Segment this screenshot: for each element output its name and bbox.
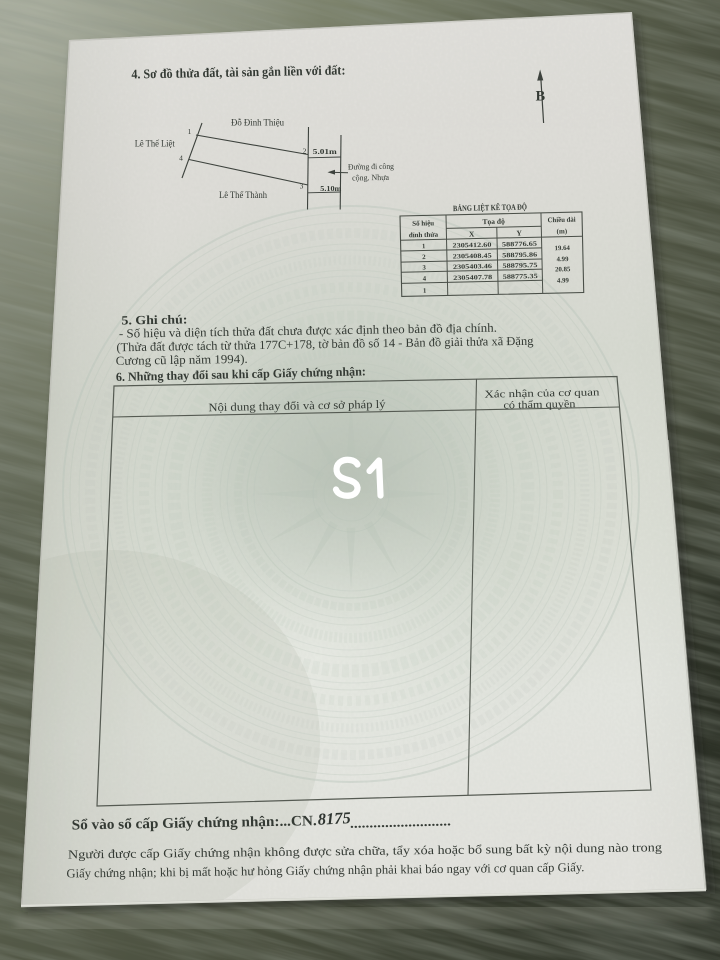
svg-text:(m): (m) bbox=[557, 227, 568, 235]
svg-text:8175: 8175 bbox=[317, 808, 351, 829]
svg-text:Xác nhận của cơ quan: Xác nhận của cơ quan bbox=[484, 387, 600, 400]
svg-text:2: 2 bbox=[303, 146, 307, 155]
svg-text:1: 1 bbox=[188, 127, 192, 136]
svg-text:19.64: 19.64 bbox=[555, 245, 571, 252]
svg-text:Đỗ Đình Thiệu: Đỗ Đình Thiệu bbox=[231, 118, 284, 129]
svg-text:cộng. Nhựa: cộng. Nhựa bbox=[352, 173, 390, 183]
svg-text:2305403.46: 2305403.46 bbox=[453, 263, 493, 271]
svg-text:5.10m: 5.10m bbox=[320, 185, 341, 193]
svg-text:Y: Y bbox=[516, 229, 522, 238]
svg-text:Cương cũ lập năm 1994).: Cương cũ lập năm 1994). bbox=[116, 352, 248, 368]
svg-text:có thẩm quyền: có thẩm quyền bbox=[503, 399, 576, 411]
svg-text:2305408.45: 2305408.45 bbox=[453, 253, 493, 261]
svg-text:B: B bbox=[536, 89, 546, 105]
svg-text:X: X bbox=[469, 230, 475, 239]
svg-text:Lê Thế Thành: Lê Thế Thành bbox=[219, 190, 267, 201]
svg-text:Tọa độ: Tọa độ bbox=[482, 217, 505, 226]
svg-text:4: 4 bbox=[179, 154, 183, 163]
svg-text:BẢNG LIỆT KÊ TỌA ĐỘ: BẢNG LIỆT KÊ TỌA ĐỘ bbox=[453, 201, 527, 213]
svg-text:588776.65: 588776.65 bbox=[502, 241, 538, 249]
svg-text:4.99: 4.99 bbox=[556, 256, 569, 263]
svg-text:2305407.78: 2305407.78 bbox=[453, 274, 493, 282]
svg-text:đỉnh thửa: đỉnh thửa bbox=[409, 231, 439, 240]
svg-text:..........................: .......................... bbox=[350, 813, 451, 830]
svg-text:4.99: 4.99 bbox=[557, 277, 570, 284]
svg-text:20.85: 20.85 bbox=[555, 266, 571, 273]
svg-text:Số hiệu: Số hiệu bbox=[412, 219, 434, 227]
svg-text:Chiều dài: Chiều dài bbox=[548, 216, 576, 225]
svg-text:Lê Thế Liệt: Lê Thế Liệt bbox=[135, 138, 175, 149]
svg-text:Đường đi công: Đường đi công bbox=[348, 162, 394, 172]
svg-text:2305412.60: 2305412.60 bbox=[452, 242, 492, 250]
svg-text:588775.35: 588775.35 bbox=[503, 273, 539, 281]
svg-text:5.01m: 5.01m bbox=[313, 148, 337, 156]
svg-text:588795.86: 588795.86 bbox=[502, 252, 538, 260]
svg-text:3: 3 bbox=[300, 182, 304, 191]
svg-text:588795.75: 588795.75 bbox=[502, 262, 538, 270]
